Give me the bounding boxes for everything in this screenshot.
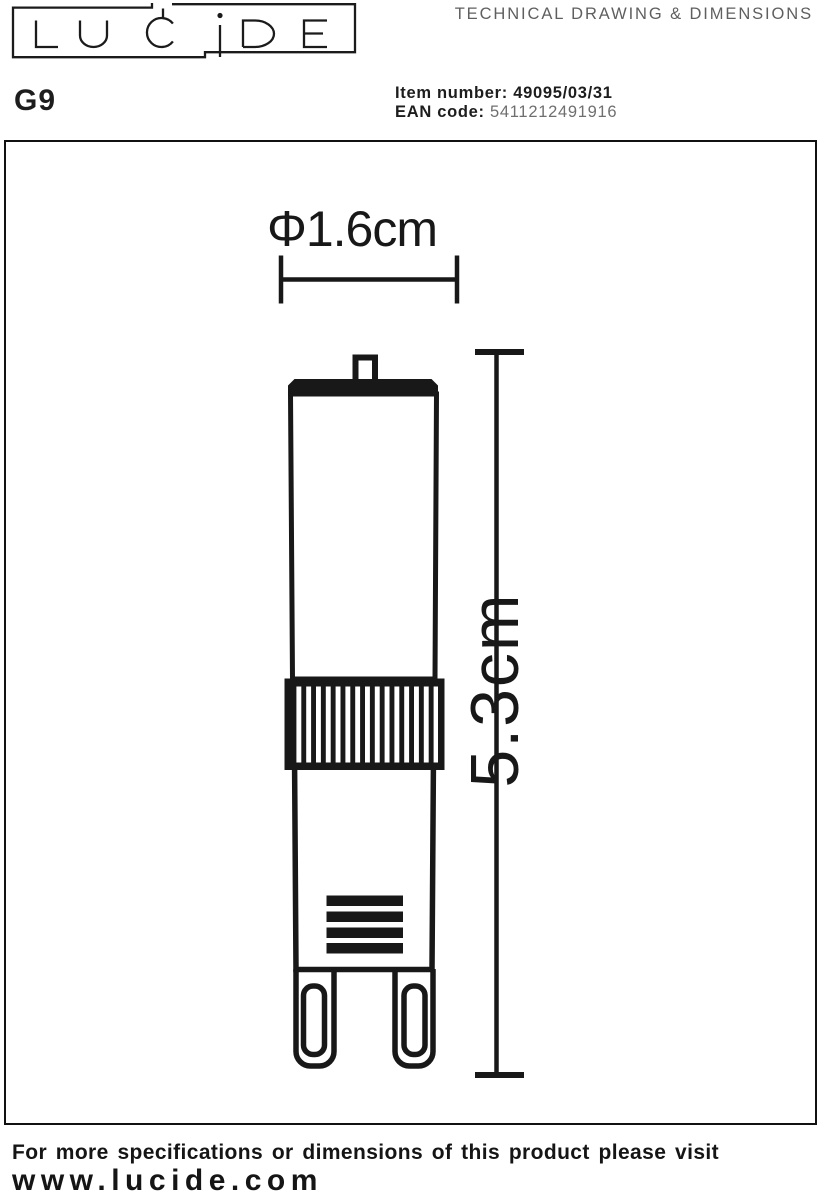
bulb-pin-slot-left [304,986,325,1055]
vent-slot [327,943,404,954]
footer-website: www.lucide.com [12,1164,323,1198]
bulb-cap [288,379,438,393]
width-dimension-label: Φ1.6cm [267,201,437,257]
page: { "header": { "logo_text": "LUCIDE", "sh… [0,0,821,1200]
vent-slot [327,928,404,939]
bulb-glass-body [291,394,437,679]
bulb-ribbed-band [292,687,439,763]
vent-slot [327,896,404,907]
technical-drawing: Φ1.6cm 5.3cm [0,0,821,1200]
height-dimension-label: 5.3cm [457,592,533,787]
bulb-pin-slot-right [404,986,425,1055]
footer-note: For more specifications or dimensions of… [12,1141,719,1165]
vent-slot [327,912,404,923]
